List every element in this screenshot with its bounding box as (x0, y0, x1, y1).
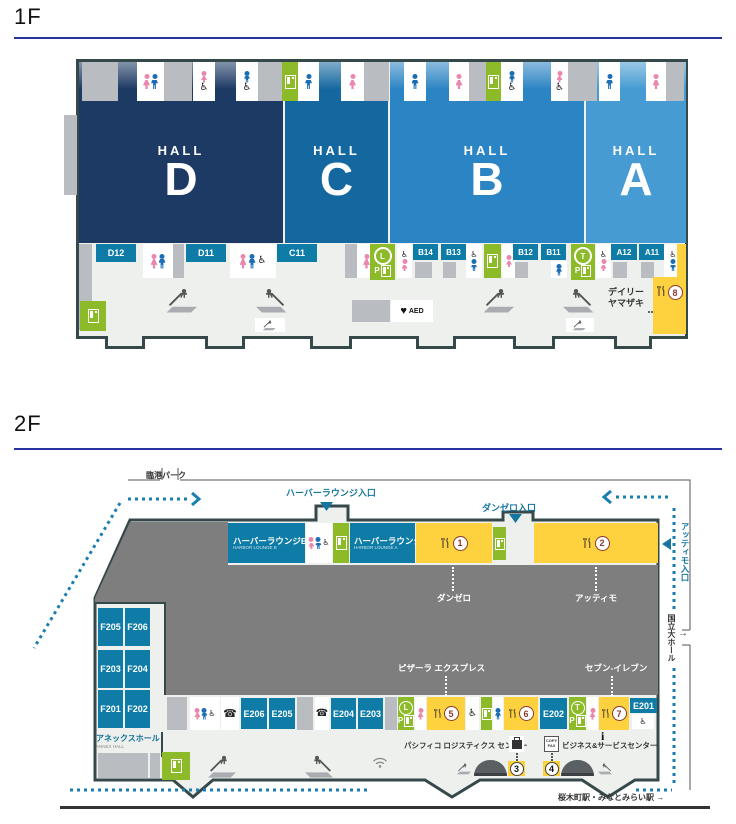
marker-8: 8 (668, 285, 683, 300)
vending-block (162, 752, 190, 780)
restaurant-2-block: 2 (534, 523, 658, 563)
marker-6: 6 (519, 706, 534, 721)
vending-machine-icon (336, 536, 347, 550)
facility-block (364, 62, 389, 101)
marker-1: 1 (453, 536, 468, 551)
restaurant-1-block: 1 (416, 523, 492, 563)
female-icon (143, 74, 150, 89)
wifi-icon (372, 756, 388, 770)
vending-machine-icon (404, 715, 414, 727)
luggage-icon (509, 736, 524, 752)
room-chip-b11: B11 (541, 244, 566, 260)
female-icon (194, 708, 200, 720)
facility-block (613, 262, 627, 278)
hall-c: HALL C (285, 101, 388, 243)
restroom-male (298, 62, 319, 101)
vending-machine-icon (576, 715, 586, 727)
room-chip-d11: D11 (186, 244, 226, 262)
restaurant-8-block: 8 (653, 277, 686, 334)
accessible-restroom-male: ♿ (236, 62, 258, 101)
restroom-male (551, 261, 567, 278)
harbor-lounge-b: ハーバーラウンジB HARBOR LOUNGE B (228, 523, 305, 563)
vending-block (484, 244, 501, 278)
annex-hall-en-label: ANNEX HALL (96, 744, 124, 749)
female-icon (590, 708, 596, 720)
restaurant-icon (657, 285, 666, 297)
marker-2: 2 (595, 536, 610, 551)
vending-machine-icon (581, 265, 591, 277)
hall-letter-c: C (320, 158, 353, 200)
male-icon (249, 254, 256, 269)
room-chip-f203: F203 (98, 650, 123, 688)
accessible-restroom: ♿ (230, 244, 276, 278)
aed-station: ♥ AED (391, 300, 433, 322)
facility-block (164, 62, 192, 101)
escalator-icon (298, 755, 336, 779)
room-chip-b13: B13 (441, 244, 466, 260)
facility-block (666, 62, 684, 101)
wheelchair-icon: ♿ (468, 709, 477, 719)
male-icon (556, 264, 562, 276)
female-icon (557, 71, 563, 83)
marker-4: 4 (545, 762, 559, 776)
restaurant-icon (441, 537, 450, 549)
male-icon (159, 254, 166, 269)
accessible-restroom-female: ♿ (193, 62, 215, 101)
escalator-icon (595, 762, 613, 774)
facility-block (352, 300, 390, 322)
vending-machine-icon (171, 759, 182, 773)
floor1-section: 1F ♿ ♿ ♿ ♿ HALL D HALL C HALL B HALL (0, 0, 736, 400)
harbor-lounge-entrance-label: ハーバーラウンジ入口 (286, 486, 376, 499)
female-icon (201, 71, 207, 83)
male-icon (244, 71, 250, 83)
hall-letter-d: D (164, 158, 197, 200)
vending-machine-icon (495, 538, 505, 550)
wheelchair-icon: ♿ (401, 251, 408, 259)
circle-t-icon: T (571, 701, 585, 715)
vending-block (282, 62, 298, 101)
room-chip-d12: D12 (96, 244, 136, 262)
restroom-female (415, 697, 426, 730)
aed-label: AED (409, 308, 424, 315)
marker-3-block: 3 (508, 761, 525, 776)
restroom-male (599, 62, 620, 101)
room-chip-e201: E201 (630, 698, 657, 713)
female-icon (240, 254, 247, 269)
dock-tab (614, 336, 652, 349)
hall-b: HALL B (390, 101, 584, 243)
leader-line (551, 753, 553, 761)
wheelchair-access: ♿ (632, 714, 654, 729)
restaurant-icon (602, 708, 610, 719)
restroom-icon (143, 244, 173, 278)
facility-block (385, 697, 397, 730)
hall-d: HALL D (79, 101, 283, 243)
vending-machine-icon (88, 309, 99, 323)
shop-name-line1: デイリー (608, 287, 644, 298)
lounge-b-en: HARBOR LOUNGE B (233, 546, 277, 551)
wheelchair-icon: ♿ (639, 718, 646, 726)
copy-fax-icon: COPY FAX (544, 736, 559, 752)
female-icon (506, 255, 512, 267)
accessible-restroom-female: ♿ (596, 244, 611, 278)
vending-block (80, 301, 106, 331)
marker-3: 3 (510, 762, 524, 776)
escalator-icon (250, 288, 288, 314)
restroom-female (449, 62, 469, 101)
vending-machine-icon (482, 708, 492, 720)
danzero-entrance-label: ダンゼロ入口 (482, 501, 536, 514)
restaurant-6-block: 6 (504, 697, 538, 730)
annex-hall-label: アネックスホール (96, 733, 160, 744)
facility-block (258, 62, 282, 101)
restaurant-icon (509, 708, 517, 719)
hall-letter-a: A (619, 158, 652, 200)
room-chip-a11: A11 (639, 244, 665, 260)
leader-line (452, 567, 454, 591)
wheelchair-icon: ♿ (322, 539, 329, 547)
escalator-down-icon (255, 318, 285, 332)
accessible-restroom-female: ♿ (397, 244, 412, 278)
floor1-divider (14, 37, 722, 39)
facility-block (150, 753, 160, 778)
restaurant-strip (677, 244, 686, 280)
accessible-restroom: ♿ (190, 697, 220, 730)
aed-icon: ♥ (400, 306, 407, 317)
male-icon (201, 708, 207, 720)
facility-block-L: L P (398, 697, 414, 730)
escalator-down-icon (566, 318, 594, 332)
male-icon (509, 71, 515, 83)
female-icon (308, 537, 314, 549)
room-chip-f205: F205 (98, 608, 123, 646)
restaurant-5-block: 5 (427, 697, 465, 730)
room-chip-f204: F204 (125, 650, 150, 688)
male-icon (151, 74, 158, 89)
floor1-left-step (64, 115, 77, 195)
male-icon (315, 537, 321, 549)
vending-block (333, 523, 349, 563)
hall-a: HALL A (586, 101, 686, 243)
accessible-restroom-female: ♿ (551, 62, 568, 101)
female-icon (418, 708, 424, 720)
wheelchair-icon: ♿ (258, 256, 267, 266)
rinko-park-label: 臨港パーク (146, 470, 186, 481)
facility-block (415, 262, 432, 278)
female-icon (601, 259, 607, 271)
seven-eleven-label: セブン-イレブン (585, 662, 647, 674)
facility-block (568, 62, 597, 101)
restroom-female (341, 62, 364, 101)
wheelchair-icon: ♿ (555, 83, 564, 93)
female-icon (151, 254, 158, 269)
male-icon (670, 259, 676, 271)
facility-block (297, 697, 313, 730)
circle-l-icon: L (374, 247, 392, 265)
danzero-label: ダンゼロ (437, 592, 471, 604)
facility-block-T: T P (569, 697, 586, 730)
room-chip-f201: F201 (98, 690, 123, 728)
harbor-lounge-a: ハーバーラウンジA HARBOR LOUNGE A (350, 523, 415, 563)
accessible-restroom-male: ♿ (466, 244, 482, 278)
shop-daily-yamazaki-label: デイリー ヤマザキ (608, 287, 644, 309)
wheelchair-icon: ♿ (470, 251, 477, 259)
room-chip-f202: F202 (125, 690, 150, 728)
female-icon (363, 254, 370, 269)
facility-block-T: T P (571, 244, 595, 280)
public-phone-icon: ☎ (221, 697, 239, 730)
wheelchair-icon: ♿ (243, 83, 252, 93)
facility-block (469, 62, 486, 101)
station-label: 桜木町駅・みなとみらい駅 → (558, 792, 664, 803)
marker-5: 5 (444, 706, 459, 721)
facility-block-L: L P (370, 244, 395, 280)
marker-7: 7 (612, 706, 627, 721)
restaurant-icon (583, 537, 592, 549)
wheelchair-icon: ♿ (508, 83, 517, 93)
vending-block (493, 527, 506, 560)
room-chip-e203: E203 (358, 698, 383, 729)
floor1-title: 1F (14, 4, 42, 30)
female-icon (653, 74, 660, 89)
vending-machine-icon (381, 265, 391, 277)
male-icon (412, 74, 419, 89)
escalator-icon (205, 755, 243, 779)
male-icon (471, 259, 477, 271)
restaurant-7-block: 7 (599, 697, 629, 730)
vending-machine-icon (487, 254, 498, 268)
leader-line (516, 753, 518, 761)
leader-line (611, 676, 613, 696)
wheelchair-icon: ♿ (600, 251, 607, 259)
attimo-label: アッティモ (575, 592, 617, 604)
room-chip-a12: A12 (611, 244, 637, 260)
escalator-icon (482, 288, 520, 314)
restroom-female (587, 697, 598, 730)
circle-t-icon: T (574, 247, 592, 265)
female-icon (456, 74, 463, 89)
facility-block (98, 753, 148, 778)
vending-block (486, 62, 501, 101)
room-chip-e206: E206 (241, 698, 267, 729)
fax-label: FAX (548, 744, 556, 749)
pizzala-label: ピザーラ エクスプレス (398, 662, 485, 674)
p-label: P (398, 717, 403, 725)
business-service-center-label: ビジネス&サービスセンター (562, 740, 657, 751)
accessible-restroom-male: ♿ (501, 62, 523, 101)
female-icon (402, 259, 408, 271)
lounge-a-en: HARBOR LOUNGE A (354, 546, 398, 551)
dock-tab (310, 336, 352, 349)
kokuritsu-hall-label: 国立大ホール (666, 614, 677, 668)
room-chip-b12: B12 (513, 244, 538, 260)
p-label: P (374, 267, 379, 275)
accessible-restroom: ♿ (306, 523, 332, 563)
restaurant-icon (434, 708, 442, 719)
circle-l-icon: L (399, 701, 413, 715)
p-label: P (569, 717, 574, 725)
restroom-female (646, 62, 666, 101)
facility-block (167, 697, 187, 730)
public-phone-icon: ☎ (315, 697, 329, 730)
dock-tab (105, 336, 145, 349)
escalator-icon (165, 288, 203, 314)
male-icon (305, 74, 312, 89)
leader-line (445, 676, 447, 696)
dock-tab (205, 336, 245, 349)
vending-machine-icon (488, 75, 499, 89)
shop-name-line2: ヤマザキ (608, 298, 644, 309)
escalator-icon (557, 288, 595, 314)
dock-tab (513, 336, 555, 349)
facility-block (641, 262, 654, 278)
facility-block (345, 244, 357, 278)
vending-machine-icon (285, 75, 296, 89)
restroom-male (404, 62, 426, 101)
room-chip-e204: E204 (331, 698, 356, 729)
male-icon (606, 74, 613, 89)
vending-block (481, 697, 492, 730)
wheelchair-icon: ♿ (200, 83, 209, 93)
facility-block (82, 62, 118, 101)
facility-block (443, 262, 456, 278)
floor2-section: 2F 臨港パーク ハーバーラウンジ入口 ダンゼロ入口 アッティモ入 (0, 400, 736, 824)
attimo-entrance-label: アッティモ入口 (679, 522, 691, 594)
hall-letter-b: B (470, 158, 503, 200)
room-chip-c11: C11 (277, 244, 317, 262)
dock-tab (416, 336, 456, 349)
room-chip-e202: E202 (540, 698, 567, 729)
female-icon (349, 74, 356, 89)
escalator-icon (456, 762, 474, 774)
marker-4-block: 4 (543, 761, 560, 776)
wheelchair-icon: ♿ (669, 251, 676, 259)
facility-block (515, 262, 528, 278)
wheelchair-access: ♿ (466, 697, 479, 730)
kokuritsu-arrow: → (678, 628, 688, 639)
male-icon (495, 708, 501, 720)
room-chip-e205: E205 (269, 698, 295, 729)
p-label: P (575, 267, 580, 275)
restroom-male (493, 697, 503, 730)
leader-line (595, 567, 597, 591)
room-chip-f206: F206 (125, 608, 150, 646)
room-chip-b14: B14 (413, 244, 438, 260)
restroom-icon (137, 62, 164, 101)
wheelchair-icon: ♿ (208, 710, 215, 718)
facility-block (173, 244, 184, 278)
